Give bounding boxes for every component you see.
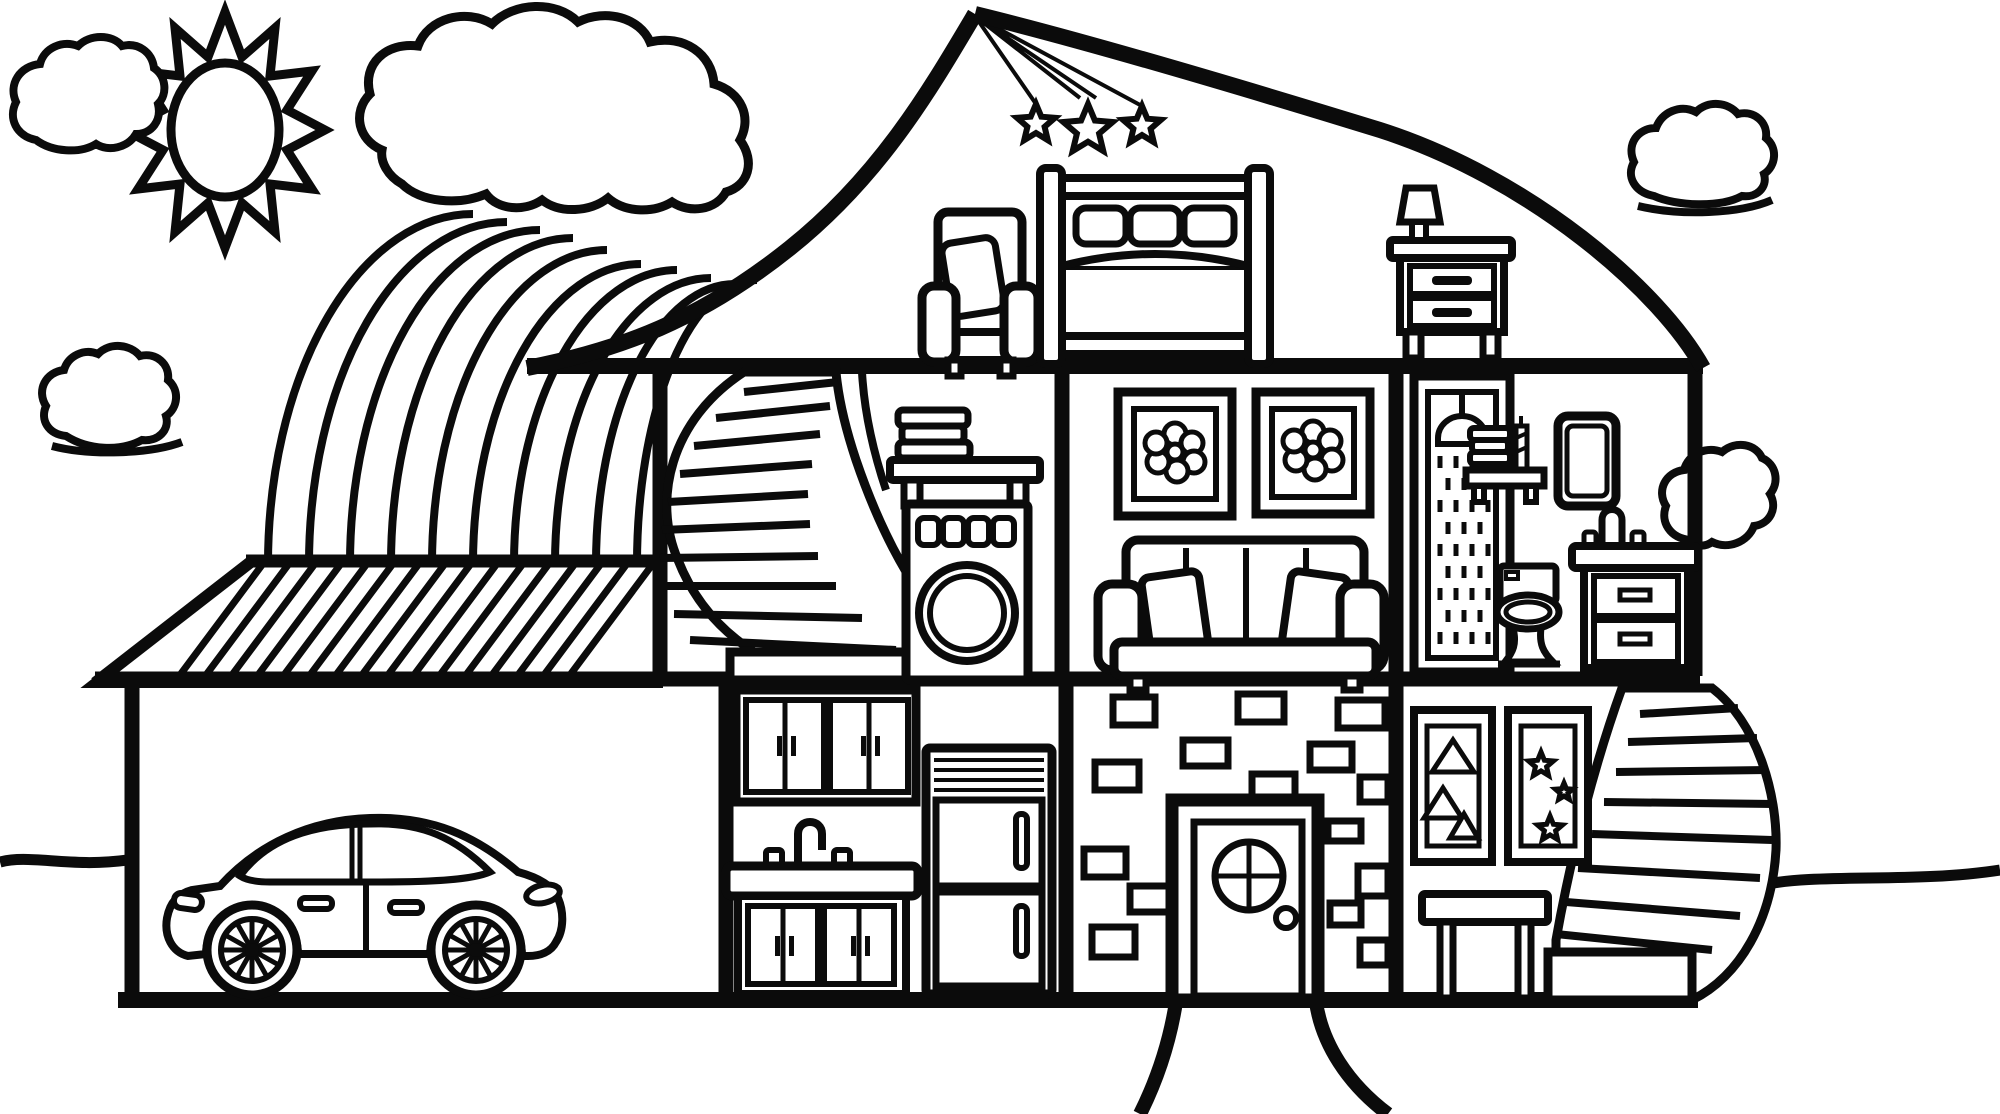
cloud-big-icon: Large cloud feeding the rainbow (360, 6, 749, 209)
drawer-handle (1620, 590, 1650, 600)
pillow (1184, 208, 1234, 244)
entry-hall: Entry hall with brick wall Front door wi… (1084, 694, 1388, 1000)
car-door-handle (390, 902, 422, 913)
garage: Garage with hatched roof Sedan car with … (166, 818, 562, 995)
cloud-top-left-icon: Small cloud (top left) (13, 37, 164, 150)
lower-cabinets: Lower cabinets, four doors (738, 896, 906, 994)
drawer-handle (1432, 276, 1472, 285)
drawer-handle (1620, 634, 1650, 644)
star-icon (1017, 104, 1055, 140)
washer-dial (918, 518, 939, 545)
fridge-handle (1016, 906, 1027, 956)
bed: Double bed with headboard, three pillows… (1040, 168, 1270, 364)
laundry-shelf: Wall shelf with stacked towels (890, 410, 1040, 506)
bathroom: Bathroom Shower stall with shower head a… (1414, 376, 1698, 672)
cloud-right-icon: Cloud (upper right) (1631, 104, 1774, 212)
table-lamp: Table lamp on nightstand (1400, 188, 1440, 240)
triangle-picture: Framed picture with triangles (1414, 710, 1492, 862)
nightstand: Nightstand with two drawers (1390, 240, 1512, 358)
armchair: Armchair with tilted cushion (922, 212, 1038, 376)
star-icon (1063, 104, 1112, 151)
attic-room: Attic bedroom Three stars hanging on str… (922, 16, 1512, 376)
flower-icon (1145, 423, 1205, 482)
coloring-page: Sun with zigzag rays Small cloud (top le… (0, 0, 2000, 1114)
bed-post (1040, 168, 1062, 364)
garage-roof: Garage with hatched roof (95, 561, 660, 683)
sun-core (171, 63, 279, 197)
pillow (1130, 208, 1180, 244)
ground-line-left: Ground line (left) (0, 859, 128, 862)
doorknob-icon (1276, 908, 1296, 928)
car-door-handle (300, 898, 332, 909)
kitchen: Kitchen Upper cabinets, four doors Sink … (726, 690, 1052, 994)
towel (1470, 428, 1510, 440)
mirror: Wall mirror (1558, 416, 1616, 506)
flower-picture-left: Framed flower picture (1118, 392, 1232, 516)
cloud-lower-right-icon: Small cloud (right of house) (1662, 445, 1776, 546)
front-path: Curved path from front door (1140, 1002, 1388, 1114)
laundry-room: Landing / laundry room Wall shelf with s… (890, 410, 1040, 680)
car-wheel (207, 905, 297, 995)
fridge-handle (1016, 814, 1027, 868)
pillow (1076, 208, 1126, 244)
flower-picture-right: Framed flower picture (1256, 392, 1370, 514)
towel (898, 410, 968, 426)
sofa: Sofa with four back cushions and two pil… (1098, 540, 1384, 690)
car-taillight (173, 892, 203, 911)
bath-shelf: Shelf with towels and striped candle (1466, 416, 1544, 502)
upper-cabinets: Upper cabinets, four doors (736, 690, 916, 802)
stars-picture: Framed picture with stars (1508, 710, 1588, 862)
front-door: Front door with round cross window and d… (1172, 800, 1318, 1000)
bath-faucet-icon (1602, 510, 1622, 547)
car: Sedan car with spoked wheels (166, 818, 562, 995)
drawer-handle (1432, 308, 1472, 317)
ground-line-right: Ground line (right) (1756, 870, 2000, 886)
play-table: Small table (1422, 894, 1548, 998)
kitchen-sink: Sink counter with faucet (726, 822, 918, 896)
cloud-mid-left-icon: Small cloud (mid left) (42, 346, 182, 452)
living-room: Living room Framed flower picture Framed… (1098, 392, 1384, 690)
washer-dial (943, 518, 964, 545)
star-icon (1123, 106, 1161, 142)
flower-icon (1283, 421, 1343, 480)
car-wheel (431, 905, 521, 995)
house-scene-svg: Sun with zigzag rays Small cloud (top le… (0, 0, 2000, 1114)
washer-dial (968, 518, 989, 545)
washing-machine: Washing machine with four dials and roun… (906, 504, 1028, 680)
bed-post (1248, 168, 1270, 364)
kitchen-faucet-icon (798, 822, 822, 866)
washer-dial (993, 518, 1014, 545)
refrigerator: Refrigerator with two doors (926, 748, 1052, 994)
shower: Shower stall with shower head and water (1414, 376, 1510, 672)
